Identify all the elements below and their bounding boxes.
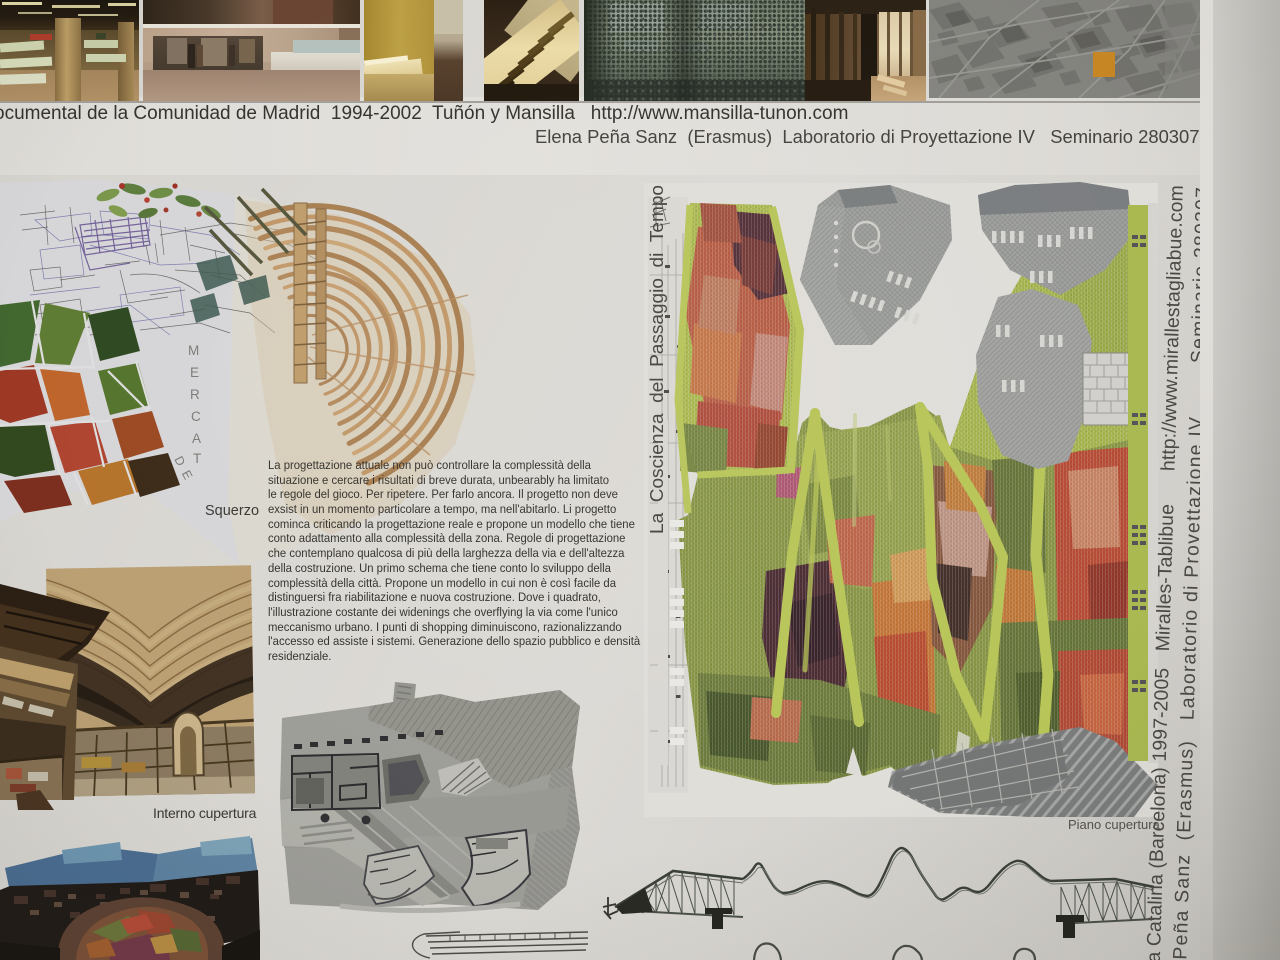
svg-text:La Coscienza del Passaggio: La Coscienza del Passaggio di Tempo <box>646 185 667 534</box>
